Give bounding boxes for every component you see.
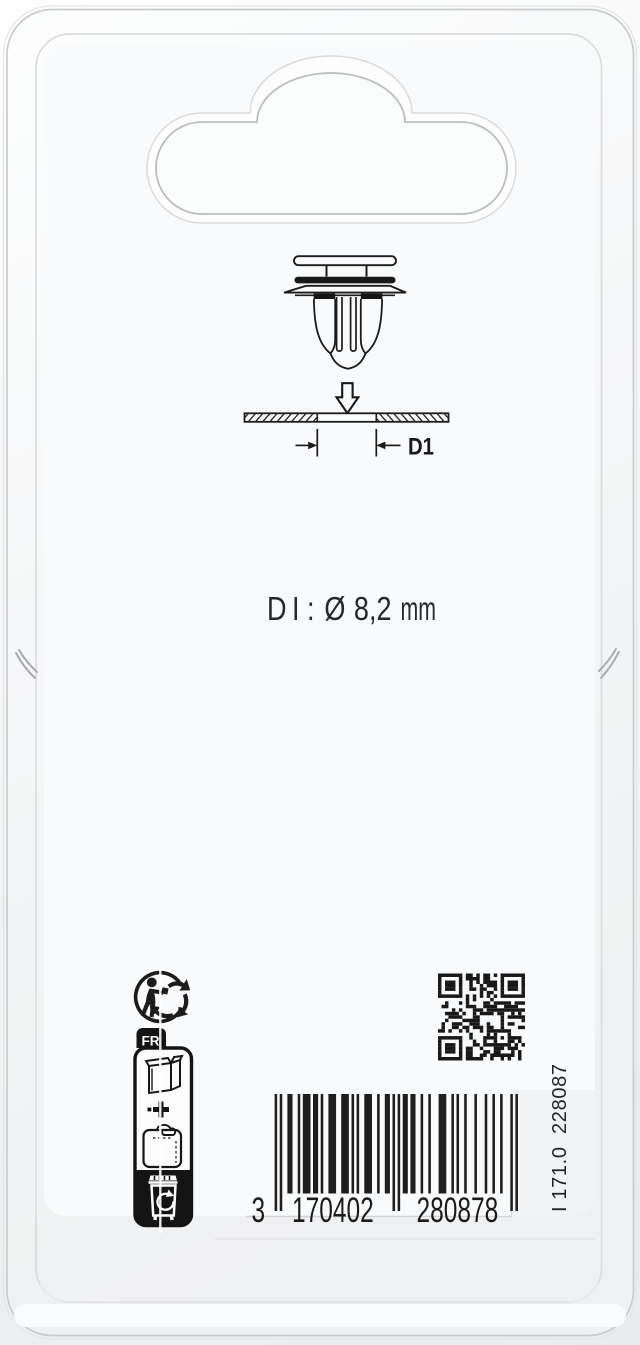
svg-text:3: 3 (252, 1191, 266, 1231)
svg-text:170402: 170402 (292, 1191, 374, 1231)
svg-text:D: D (267, 592, 287, 628)
svg-text:280878: 280878 (416, 1191, 498, 1231)
svg-text::: : (307, 592, 315, 628)
svg-text:D1: D1 (408, 434, 434, 461)
svg-text:Ø: Ø (324, 592, 345, 628)
svg-text:8,2: 8,2 (354, 592, 392, 628)
svg-text:mm: mm (400, 592, 436, 628)
svg-text:I: I (292, 592, 300, 628)
svg-text:I 171.0 228087: I 171.0 228087 (549, 1064, 571, 1212)
svg-text:FR: FR (142, 1034, 160, 1049)
